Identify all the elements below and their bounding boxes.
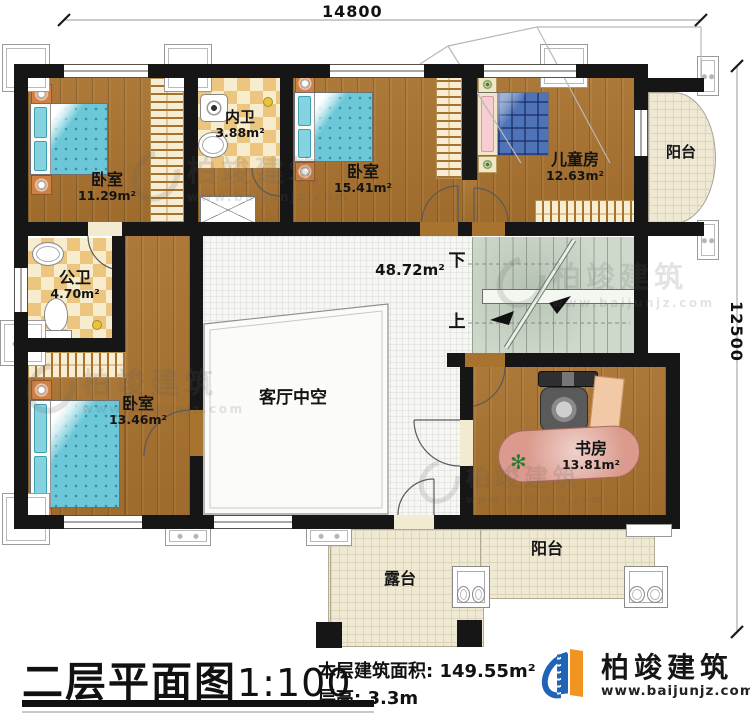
wall: [447, 353, 465, 367]
wall: [280, 64, 293, 236]
wall: [142, 515, 214, 529]
wall: [634, 156, 648, 235]
wall: [458, 222, 472, 236]
company-logo: 柏竣建筑 www.baijunjz.com: [545, 644, 750, 708]
company-logo-icon: [545, 644, 591, 708]
room-label-bedroom-bl: 卧室 13.46m²: [86, 395, 190, 427]
stairs-up-label: 上: [444, 313, 470, 332]
wall: [460, 367, 473, 420]
room-label-kids-room: 儿童房 12.63m²: [517, 151, 633, 183]
wall: [648, 78, 704, 92]
window: [484, 64, 576, 78]
window: [14, 268, 28, 312]
room-label-study: 书房 13.81m²: [541, 440, 641, 472]
room-label-balcony-bottom: 阳台: [513, 540, 581, 558]
floor-plan: ✻: [0, 0, 750, 715]
wall: [190, 236, 203, 410]
window: [64, 515, 142, 529]
room-label-public-bath: 公卫 4.70m²: [33, 269, 117, 301]
room-label-bedroom-tm: 卧室 15.41m²: [311, 163, 415, 195]
room-label-inner-bath: 内卫 3.88m²: [199, 109, 281, 140]
plan-title: 二层平面图1:100: [22, 648, 352, 708]
pillar: [316, 622, 342, 648]
wall: [14, 338, 125, 352]
window: [330, 64, 424, 78]
wall: [505, 353, 680, 367]
wall: [648, 222, 704, 236]
room-label-balcony-top: 阳台: [648, 144, 714, 161]
window: [64, 64, 148, 78]
wall: [14, 515, 64, 529]
wall: [634, 235, 648, 353]
room-label-living-void: 客厅中空: [231, 389, 355, 408]
wall: [122, 222, 420, 236]
wall: [148, 64, 330, 78]
room-label-bedroom-tl: 卧室 11.29m²: [55, 171, 159, 203]
wall: [184, 64, 198, 236]
sliding-door: [634, 110, 648, 156]
wall: [634, 64, 648, 110]
step: [626, 524, 672, 537]
wall: [14, 64, 28, 268]
wall: [190, 456, 203, 515]
dimension-height: 12500: [727, 301, 746, 362]
wall: [292, 515, 394, 529]
company-name: 柏竣建筑: [601, 653, 750, 684]
window: [214, 515, 292, 529]
room-label-terrace: 露台: [366, 570, 434, 588]
stairs-down-label: 下: [444, 252, 470, 271]
wall: [505, 222, 648, 236]
wall: [14, 222, 88, 236]
pillar: [457, 620, 482, 647]
plan-info: 本层建筑面积: 149.55m² 层高: 3.3m: [318, 658, 536, 712]
wall: [462, 64, 477, 180]
dimension-width: 14800: [322, 2, 383, 21]
company-website: www.baijunjz.com: [601, 683, 750, 699]
wall: [460, 466, 473, 515]
wall: [666, 367, 680, 529]
